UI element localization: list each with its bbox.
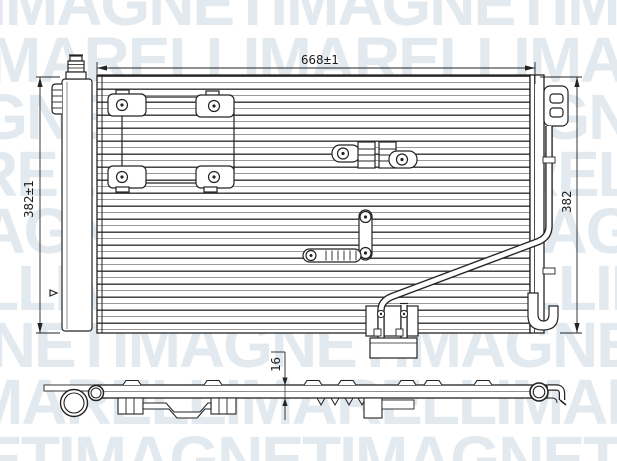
right-top-bracket — [544, 86, 568, 126]
depth-dimension-label: 16 — [268, 357, 283, 372]
lower-mounting-bracket — [118, 398, 236, 418]
tank-notch — [50, 290, 57, 296]
bottom-view — [44, 381, 566, 419]
height-right-dimension-label: 382 — [559, 190, 574, 213]
condenser-technical-drawing: 668±1 382±1 382 16 — [0, 0, 617, 461]
front-view — [50, 55, 568, 358]
spring-clips — [317, 398, 366, 405]
drawing-canvas: LIMAGNETIMAGNETIMAGNE MARELLIMARELLIMARE… — [0, 0, 617, 461]
frame-clip-top-left — [108, 90, 146, 116]
rib-bracket — [52, 84, 62, 114]
width-dimension-label: 668±1 — [301, 52, 339, 67]
pipe-clamp — [543, 268, 555, 274]
ribbed-strip-bracket — [303, 249, 361, 262]
frame-clip-bottom-right — [196, 166, 234, 192]
frame-clip-bottom-left — [108, 166, 146, 192]
receiver-drier-tank — [50, 79, 92, 331]
frame-clip-top-right — [196, 91, 234, 117]
height-left-dimension-label: 382±1 — [21, 180, 36, 218]
filler-cap — [66, 55, 86, 79]
right-pipe-fitting — [530, 383, 566, 405]
condenser-core — [97, 75, 530, 333]
top-clip-bumps — [123, 381, 492, 386]
bracket-foot — [370, 338, 417, 358]
bottom-foot-and-plate — [364, 398, 414, 418]
pipe-clamp — [543, 157, 555, 163]
